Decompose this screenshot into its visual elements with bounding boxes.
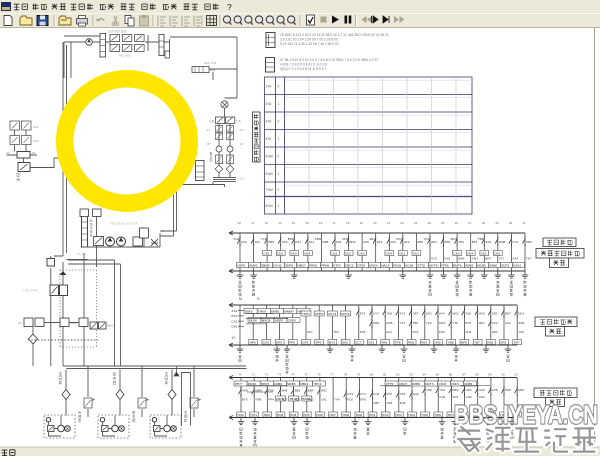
svg-text:YX3: YX3 [426, 321, 432, 325]
svg-text:MP0: MP0 [461, 340, 468, 344]
svg-text:82: 82 [396, 373, 400, 377]
svg-text:MC6: MC6 [439, 321, 446, 325]
svg-text:TK2: TK2 [333, 330, 339, 334]
svg-text:23: 23 [414, 221, 418, 225]
svg-text:PA5: PA5 [382, 340, 388, 344]
svg-text:KSA1: KSA1 [513, 263, 521, 267]
svg-text:KD2: KD2 [295, 398, 301, 402]
svg-text:MKB3: MKB3 [287, 382, 296, 386]
svg-text:MYT8: MYT8 [429, 263, 438, 267]
svg-text:MF0: MF0 [451, 237, 457, 241]
svg-text:2YA: 2YA [266, 102, 273, 106]
svg-text:MCT3: MCT3 [425, 382, 434, 386]
svg-text:4.003.7 0.3 0.5 0 8: 4.003.7 0.3 0.5 0 8 41.0 -9 0 3 8 [280, 63, 327, 67]
svg-text:CK1: CK1 [331, 251, 337, 255]
svg-text:90: 90 [502, 373, 506, 377]
svg-text:78: 78 [344, 373, 348, 377]
svg-text:HFO: HFO [107, 324, 114, 328]
svg-text:FY5: FY5 [512, 240, 518, 244]
svg-text:BY6: BY6 [465, 321, 471, 325]
svg-text:PM1: PM1 [408, 340, 415, 344]
svg-text:6YA0: 6YA0 [266, 172, 274, 176]
svg-text:BD7: BD7 [505, 312, 511, 316]
svg-text:HO2: HO2 [264, 413, 271, 417]
svg-text:HA0: HA0 [479, 388, 485, 392]
svg-text:87: 87 [462, 373, 466, 377]
svg-text:79: 79 [357, 373, 361, 377]
svg-text:HXF5: HXF5 [237, 263, 245, 267]
svg-text:TB6: TB6 [413, 321, 419, 325]
svg-text:FT4: FT4 [360, 392, 366, 396]
svg-text:HP6: HP6 [250, 340, 256, 344]
svg-text:HF1 YV2: HF1 YV2 [204, 61, 216, 65]
svg-text:ADP5: ADP5 [275, 318, 283, 322]
svg-text:BS4: BS4 [288, 237, 294, 241]
svg-text:70: 70 [239, 373, 243, 377]
svg-text:15: 15 [305, 221, 309, 225]
svg-text:?: ? [227, 2, 232, 12]
svg-text:CBC2: CBC2 [345, 263, 354, 267]
svg-text:22: 22 [400, 221, 404, 225]
svg-text:KB3: KB3 [492, 312, 498, 316]
svg-text:FF1: FF1 [309, 240, 315, 244]
svg-text:AH3: AH3 [465, 330, 471, 334]
svg-text:KF2: KF2 [33, 139, 39, 143]
svg-text:CXP0: CXP0 [288, 318, 296, 322]
svg-text:AMK2: AMK2 [249, 263, 258, 267]
svg-text:BBS.IYEYA.CN: BBS.IYEYA.CN [454, 402, 598, 430]
svg-text:YPH1: YPH1 [302, 312, 310, 316]
svg-text:DTD0: DTD0 [357, 263, 365, 267]
svg-text:DM8: DM8 [499, 240, 506, 244]
svg-text:YS5: YS5 [518, 330, 524, 334]
svg-text:KH3: KH3 [234, 237, 240, 241]
svg-text:YT1: YT1 [399, 321, 405, 325]
svg-text:KX0: KX0 [426, 312, 432, 316]
svg-text:21: 21 [387, 221, 391, 225]
svg-text:1: 1 [278, 204, 280, 208]
svg-text:83: 83 [409, 373, 413, 377]
svg-text:BMT6: BMT6 [453, 263, 462, 267]
svg-text:8YA0: 8YA0 [266, 204, 274, 208]
svg-text:FFF6: FFF6 [441, 263, 449, 267]
svg-text:10: 10 [238, 221, 242, 225]
svg-text:BX1: BX1 [232, 314, 238, 318]
svg-text:SCP1: SCP1 [501, 263, 509, 267]
svg-text:1: 1 [278, 137, 280, 141]
svg-text:HA2: HA2 [413, 392, 419, 396]
svg-text:HO4: HO4 [290, 413, 297, 417]
svg-text:MP2: MP2 [452, 388, 459, 392]
svg-text:FBD4: FBD4 [300, 382, 308, 386]
svg-text:YD6: YD6 [386, 312, 392, 316]
svg-text:HO6: HO6 [316, 413, 323, 417]
svg-text:HB7: HB7 [374, 401, 380, 405]
svg-text:HO1: HO1 [251, 413, 258, 417]
svg-text:HF2: HF2 [404, 240, 410, 244]
svg-text:TB8: TB8 [478, 237, 484, 241]
svg-text:AA1: AA1 [386, 330, 392, 334]
svg-text:SY3: SY3 [373, 312, 379, 316]
svg-text:XY3: XY3 [399, 312, 405, 316]
svg-text:19: 19 [360, 221, 364, 225]
svg-text:0: 0 [278, 188, 280, 192]
svg-text:4YA: 4YA [266, 137, 273, 141]
svg-text:TS7: TS7 [526, 257, 532, 261]
svg-text:26: 26 [455, 221, 459, 225]
svg-text:CK2: CK2 [413, 251, 419, 255]
svg-text:XC2: XC2 [492, 321, 498, 325]
svg-text:24: 24 [427, 221, 431, 225]
svg-text:MXC8: MXC8 [262, 318, 271, 322]
svg-text:76: 76 [317, 373, 321, 377]
svg-text:HO0: HO0 [237, 413, 244, 417]
svg-text:HK0: HK0 [466, 388, 472, 392]
svg-text:XK1: XK1 [400, 392, 406, 396]
svg-text:PPY8: PPY8 [341, 312, 349, 316]
svg-text:FPH6: FPH6 [321, 263, 329, 267]
svg-text:91: 91 [515, 373, 519, 377]
svg-text:KC6: KC6 [241, 240, 247, 244]
svg-text:CK4: CK4 [386, 251, 392, 255]
svg-text:MBC7: MBC7 [297, 263, 306, 267]
svg-text:YC3: YC3 [261, 237, 267, 241]
svg-text:SP3: SP3 [500, 340, 506, 344]
svg-text:CA: CA [236, 120, 241, 124]
svg-text:MY5: MY5 [479, 312, 486, 316]
svg-text:PPY7: PPY7 [235, 382, 243, 386]
svg-text:97 98.4 5.67.8 9.32 9.0 3.7: 97 98.4 5.67.8 9.32 9.0 3.7 5.6 8 9-10 9… [280, 58, 378, 62]
svg-text:YB8: YB8 [448, 340, 454, 344]
svg-text:MT9: MT9 [276, 340, 282, 344]
svg-text:SM9: SM9 [458, 257, 465, 261]
svg-text:HO6: HO6 [435, 413, 442, 417]
svg-text:MD7: MD7 [518, 388, 525, 392]
svg-text:HY2: HY2 [347, 392, 353, 396]
svg-text:MS7: MS7 [526, 240, 533, 244]
svg-text:9.43 100 21: 9.43 100 21 3.06 1.92 98 7.46 2.96 9.00 [280, 42, 339, 46]
svg-text:HO7: HO7 [329, 413, 336, 417]
svg-text:MCB5: MCB5 [477, 263, 486, 267]
svg-text:KTF3: KTF3 [333, 263, 341, 267]
svg-text:SA9: SA9 [485, 240, 491, 244]
svg-text:XD3: XD3 [281, 398, 287, 402]
svg-text:CH0: CH0 [466, 395, 472, 399]
svg-text:SS7: SS7 [307, 330, 313, 334]
svg-text:0: 0 [278, 119, 280, 123]
svg-text:SBM0: SBM0 [261, 263, 270, 267]
svg-text:M: M [239, 297, 242, 301]
svg-text:HO4: HO4 [408, 413, 415, 417]
svg-text:28 4587.6 213.4 52 0.00 15.30: 28 4587.6 213.4 52 0.00 15.30 98.5 40.2 … [280, 33, 389, 37]
svg-text:CP2: CP2 [302, 340, 308, 344]
svg-text:P2: P2 [160, 229, 164, 233]
svg-text:SY5: SY5 [431, 257, 437, 261]
svg-text:28: 28 [482, 221, 486, 225]
svg-text:YV1 YV2: YV1 YV2 [118, 54, 130, 58]
svg-text:20: 20 [373, 221, 377, 225]
svg-text:84: 84 [423, 373, 427, 377]
svg-text:HO5: HO5 [422, 413, 429, 417]
svg-text:73: 73 [278, 373, 282, 377]
svg-text:PA3: PA3 [421, 340, 427, 344]
svg-text:11: 11 [251, 221, 254, 225]
svg-text:FC0: FC0 [347, 398, 353, 402]
svg-text:CK1: CK1 [264, 251, 270, 255]
svg-text:PP0: PP0 [316, 340, 322, 344]
svg-text:13: 13 [278, 221, 282, 225]
svg-text:AX8: AX8 [492, 388, 498, 392]
svg-text:SH8: SH8 [281, 389, 287, 393]
svg-text:YM1: YM1 [472, 257, 479, 261]
svg-text:CX1: CX1 [232, 319, 238, 323]
svg-text:CA8: CA8 [439, 395, 445, 399]
svg-text:HA2: HA2 [321, 389, 327, 393]
svg-text:XS5: XS5 [465, 312, 471, 316]
svg-text:PP2: PP2 [360, 330, 366, 334]
svg-text:CC7: CC7 [355, 340, 361, 344]
svg-text:HAC6: HAC6 [381, 263, 390, 267]
svg-text:74: 74 [291, 373, 295, 377]
svg-text:HP3: HP3 [492, 330, 498, 334]
svg-text:MS9: MS9 [373, 321, 380, 325]
svg-text:DXB6: DXB6 [412, 382, 420, 386]
svg-text:AA: AA [6, 151, 10, 155]
svg-text:CXF8: CXF8 [438, 382, 446, 386]
svg-text:9(2)3 0 7.1 0 5 4 8: 9(2)3 0 7.1 0 5 4 8 91 4/ 8 0 3 7 [280, 67, 326, 71]
svg-text:72: 72 [265, 373, 269, 377]
svg-text:YB7: YB7 [474, 340, 480, 344]
svg-text:YT5: YT5 [452, 321, 458, 325]
svg-text:ADB3: ADB3 [465, 263, 473, 267]
svg-text:CK2: CK2 [277, 251, 283, 255]
svg-text:1DT 2DT 3DT: 1DT 2DT 3DT [108, 30, 127, 34]
svg-text:PX2: PX2 [413, 330, 419, 334]
svg-text:1: 1 [278, 172, 280, 176]
svg-text:HO2: HO2 [382, 413, 389, 417]
svg-text:5YA0: 5YA0 [266, 154, 274, 158]
svg-text:PF2: PF2 [396, 237, 402, 241]
svg-text:BT6: BT6 [360, 398, 366, 402]
svg-text:TA1: TA1 [255, 240, 261, 244]
svg-text:TD5: TD5 [458, 240, 464, 244]
svg-text:1YA: 1YA [266, 84, 273, 88]
svg-text:DSF2: DSF2 [245, 309, 253, 313]
svg-text:XHP5: XHP5 [315, 312, 323, 316]
svg-text:DH0: DH0 [434, 340, 440, 344]
svg-text:SAB0: SAB0 [489, 263, 497, 267]
svg-text:AX4: AX4 [512, 257, 518, 261]
svg-text:TM8: TM8 [255, 398, 261, 402]
svg-text:FPH2: FPH2 [309, 263, 317, 267]
svg-text:SA2: SA2 [342, 340, 348, 344]
svg-text:0: 0 [278, 84, 280, 88]
svg-text:BB3: BB3 [295, 389, 301, 393]
svg-text:KF1: KF1 [33, 125, 39, 129]
svg-text:XKX4: XKX4 [249, 318, 257, 322]
svg-text:AX1: AX1 [232, 309, 238, 313]
svg-text:XM4: XM4 [342, 237, 349, 241]
svg-text:PM5: PM5 [315, 237, 322, 241]
svg-text:FK0: FK0 [308, 398, 314, 402]
svg-text:CK1: CK1 [481, 251, 487, 255]
svg-text:YK2: YK2 [423, 237, 429, 241]
svg-text:SM2: SM2 [518, 321, 525, 325]
svg-text:HO1: HO1 [369, 413, 376, 417]
svg-text:DYH2: DYH2 [273, 263, 282, 267]
svg-text:FH9: FH9 [400, 401, 406, 405]
svg-text:71: 71 [252, 373, 256, 377]
svg-text:KX5: KX5 [445, 257, 451, 261]
svg-text:30: 30 [509, 221, 513, 225]
svg-text:PS7: PS7 [387, 392, 393, 396]
svg-text:CA1: CA1 [321, 398, 327, 402]
svg-text:TP8: TP8 [395, 340, 401, 344]
svg-text:0: 0 [278, 154, 280, 158]
svg-text:CK2: CK2 [345, 251, 351, 255]
svg-text:CK3: CK3 [454, 251, 460, 255]
svg-text:CK4: CK4 [304, 251, 310, 255]
svg-text:CK3: CK3 [359, 251, 365, 255]
svg-text:16: 16 [319, 221, 323, 225]
svg-text:HO0: HO0 [356, 413, 363, 417]
svg-text:PB5: PB5 [268, 240, 274, 244]
svg-text:1: 1 [278, 102, 280, 106]
svg-text:CD4: CD4 [479, 395, 485, 399]
svg-text:THK9: THK9 [258, 309, 266, 313]
svg-text:25: 25 [441, 221, 445, 225]
svg-text:PKS9: PKS9 [393, 263, 401, 267]
svg-text:MF1: MF1 [479, 321, 485, 325]
svg-text:29: 29 [495, 221, 499, 225]
svg-text:75: 75 [304, 373, 308, 377]
svg-text:CK4: CK4 [467, 251, 473, 255]
svg-text:FC8: FC8 [374, 392, 380, 396]
svg-text:86: 86 [449, 373, 453, 377]
svg-text:MH3: MH3 [452, 312, 459, 316]
svg-text:FA9: FA9 [336, 240, 342, 244]
svg-text:4Y: 4Y [240, 142, 244, 146]
svg-text:KMB1: KMB1 [271, 309, 280, 313]
svg-text:CK1: CK1 [399, 251, 405, 255]
svg-text:AK8: AK8 [387, 401, 393, 405]
svg-text:FSC: FSC [71, 321, 78, 325]
svg-text:80: 80 [370, 373, 374, 377]
svg-text:MSC4: MSC4 [369, 263, 378, 267]
svg-text:YBY2: YBY2 [313, 382, 321, 386]
svg-text:14: 14 [292, 221, 296, 225]
svg-text:AM5: AM5 [386, 321, 393, 325]
svg-text:Y102 YF06: Y102 YF06 [22, 289, 38, 293]
svg-text:88: 88 [475, 373, 479, 377]
svg-text:DB8: DB8 [322, 240, 328, 244]
svg-text:2.0 3.81 20: 2.0 3.81 20 2.64 1.50 50 7.00 2.28 8.00 [280, 38, 338, 42]
svg-text:BD9: BD9 [350, 240, 356, 244]
svg-text:FKF3: FKF3 [451, 382, 459, 386]
svg-text:CB: CB [210, 120, 215, 124]
svg-text:31: 31 [522, 221, 526, 225]
svg-text:3Y: 3Y [207, 142, 211, 146]
svg-text:HO5: HO5 [303, 413, 310, 417]
svg-text:CA2: CA2 [505, 321, 511, 325]
svg-text:CK3: CK3 [291, 251, 297, 255]
svg-text:18: 18 [346, 221, 350, 225]
svg-text:DP7: DP7 [413, 312, 419, 316]
svg-text:KT3: KT3 [360, 312, 366, 316]
svg-text:BB4: BB4 [308, 389, 314, 393]
svg-text:XD1: XD1 [452, 395, 458, 399]
svg-text:MMM7: MMM7 [284, 309, 294, 313]
svg-text:12: 12 [265, 221, 269, 225]
svg-text:PD8: PD8 [505, 388, 511, 392]
svg-text:BT6: BT6 [242, 398, 248, 402]
svg-text:TX4: TX4 [334, 398, 340, 402]
svg-text:DA1: DA1 [295, 240, 301, 244]
svg-text:BH7: BH7 [485, 257, 491, 261]
svg-text:KS8: KS8 [487, 340, 493, 344]
svg-text:HO3: HO3 [277, 413, 284, 417]
svg-text:2Y: 2Y [240, 128, 244, 132]
svg-text:81: 81 [383, 373, 387, 377]
svg-text:XDF6: XDF6 [285, 263, 293, 267]
svg-text:17: 17 [332, 221, 336, 225]
svg-text:7YA0: 7YA0 [266, 188, 274, 192]
svg-text:HO8: HO8 [343, 413, 350, 417]
svg-text:YD4: YD4 [439, 388, 445, 392]
svg-text:FP4: FP4 [268, 398, 274, 402]
svg-text:FA3: FA3 [377, 240, 383, 244]
svg-text:bbs.iyeya.cn 1024: bbs.iyeya.cn 1024 [110, 222, 137, 226]
svg-text:AB: AB [32, 151, 36, 155]
svg-text:HP2: HP2 [431, 240, 437, 244]
svg-text:CA5: CA5 [263, 340, 269, 344]
svg-text:KCX8: KCX8 [405, 263, 413, 267]
svg-text:27: 27 [468, 221, 472, 225]
svg-text:FF6: FF6 [210, 69, 216, 73]
svg-text:XT1: XT1 [499, 257, 505, 261]
svg-text:STT0: STT0 [417, 263, 425, 267]
svg-text:85: 85 [436, 373, 440, 377]
svg-text:FD3: FD3 [439, 330, 445, 334]
svg-text:89: 89 [488, 373, 492, 377]
svg-text:MY2: MY2 [329, 340, 336, 344]
svg-text:SX1: SX1 [368, 340, 374, 344]
svg-text:DK3: DK3 [518, 312, 524, 316]
svg-text:HO3: HO3 [395, 413, 402, 417]
svg-text:SB1: SB1 [369, 237, 375, 241]
svg-text:77: 77 [331, 373, 335, 377]
svg-text:TH8: TH8 [426, 388, 432, 392]
svg-text:FF: FF [18, 321, 22, 325]
svg-text:3YA: 3YA [266, 119, 273, 123]
svg-text:DX1: DX1 [232, 325, 238, 329]
svg-text:P101: P101 [238, 177, 245, 181]
svg-text:XH7: XH7 [514, 340, 520, 344]
svg-text:1Y: 1Y [207, 128, 211, 132]
svg-text:AY4: AY4 [439, 312, 445, 316]
svg-text:CKY3: CKY3 [328, 312, 336, 316]
svg-text:P102 T: P102 T [77, 252, 87, 256]
svg-text:PF8: PF8 [289, 340, 295, 344]
svg-text:CK2: CK2 [494, 251, 500, 255]
